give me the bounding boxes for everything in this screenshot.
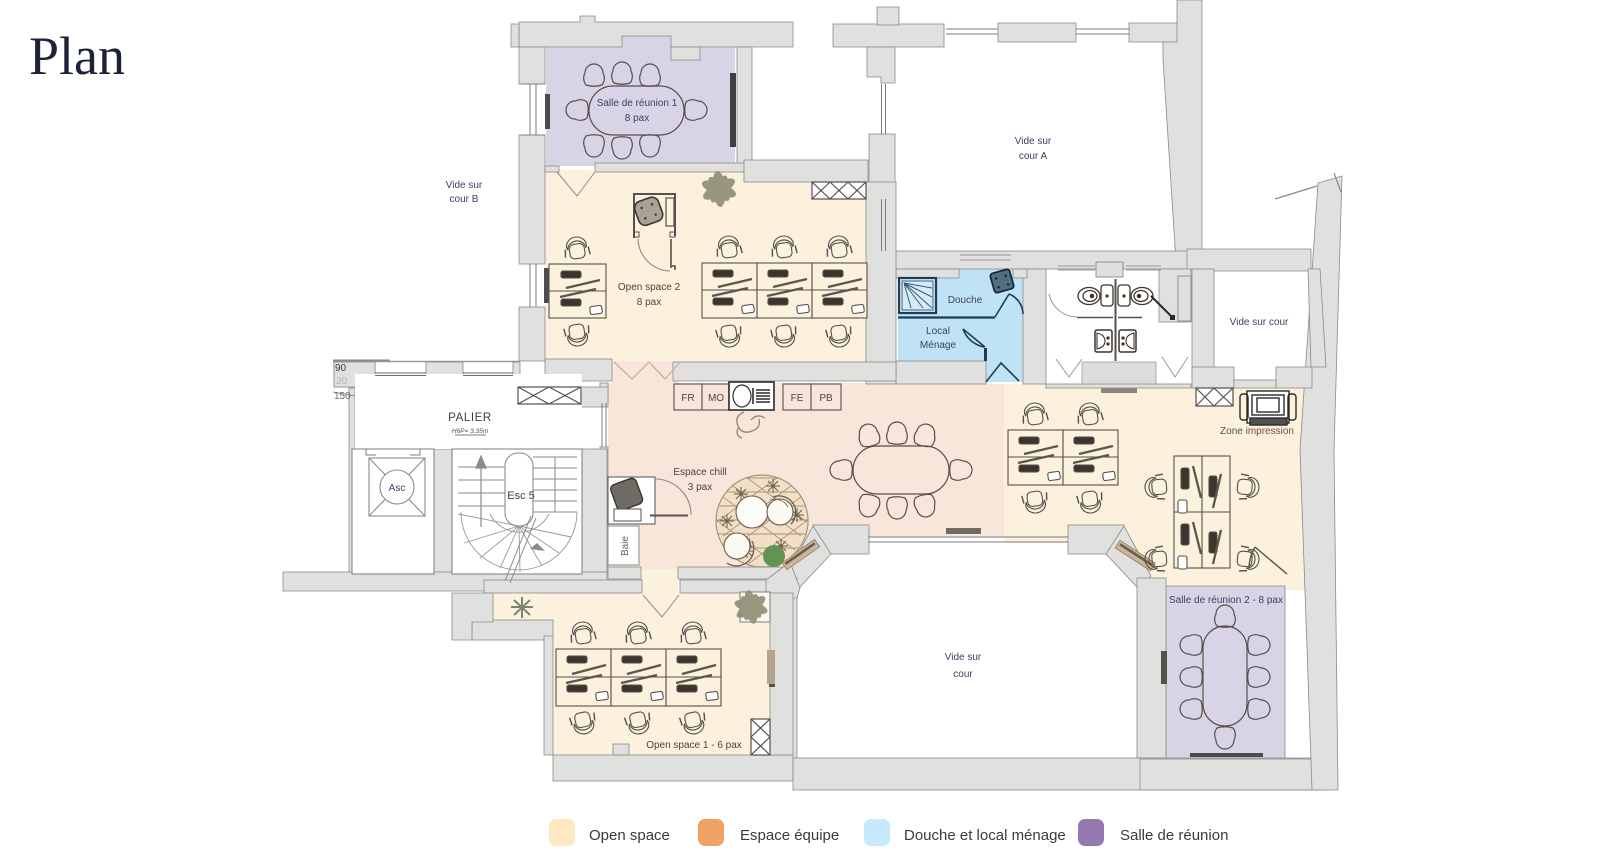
svg-text:cour B: cour B: [450, 194, 479, 205]
svg-text:Open space 2: Open space 2: [618, 282, 681, 293]
svg-text:Vide sur: Vide sur: [945, 652, 982, 663]
svg-text:Vide sur: Vide sur: [446, 180, 483, 191]
svg-text:8 pax: 8 pax: [637, 297, 661, 308]
svg-text:Esc 5: Esc 5: [507, 490, 535, 502]
svg-text:Zone impression: Zone impression: [1220, 426, 1294, 437]
svg-text:Local: Local: [926, 326, 950, 337]
svg-text:Douche et local ménage: Douche et local ménage: [904, 827, 1066, 844]
svg-text:Salle de réunion: Salle de réunion: [1120, 827, 1228, 844]
svg-text:Open space: Open space: [589, 827, 670, 844]
svg-text:Salle de réunion 1: Salle de réunion 1: [597, 98, 678, 109]
svg-text:FE: FE: [791, 393, 804, 404]
svg-text:Salle de réunion 2 - 8 pax: Salle de réunion 2 - 8 pax: [1169, 595, 1283, 606]
svg-text:Plan: Plan: [29, 26, 125, 86]
svg-text:Ménage: Ménage: [920, 340, 957, 351]
svg-text:Espace chill: Espace chill: [673, 467, 726, 478]
svg-text:FR: FR: [681, 393, 694, 404]
svg-text:MO: MO: [708, 393, 724, 404]
svg-text:cour: cour: [953, 669, 973, 680]
svg-text:8 pax: 8 pax: [625, 113, 649, 124]
svg-text:90: 90: [335, 363, 347, 374]
svg-text:20: 20: [336, 376, 348, 387]
svg-text:Open space 1 - 6 pax: Open space 1 - 6 pax: [646, 740, 742, 751]
svg-text:Baie: Baie: [620, 536, 631, 556]
svg-text:Douche: Douche: [948, 295, 983, 306]
svg-text:Vide sur cour: Vide sur cour: [1230, 317, 1289, 328]
svg-text:3 pax: 3 pax: [688, 482, 712, 493]
svg-text:PB: PB: [819, 393, 833, 404]
svg-text:H6P= 3.35m: H6P= 3.35m: [452, 428, 489, 435]
svg-text:cour A: cour A: [1019, 151, 1048, 162]
svg-text:Espace équipe: Espace équipe: [740, 827, 839, 844]
svg-text:Asc: Asc: [389, 483, 406, 494]
svg-text:Vide sur: Vide sur: [1015, 136, 1052, 147]
svg-text:PALIER: PALIER: [448, 412, 492, 424]
